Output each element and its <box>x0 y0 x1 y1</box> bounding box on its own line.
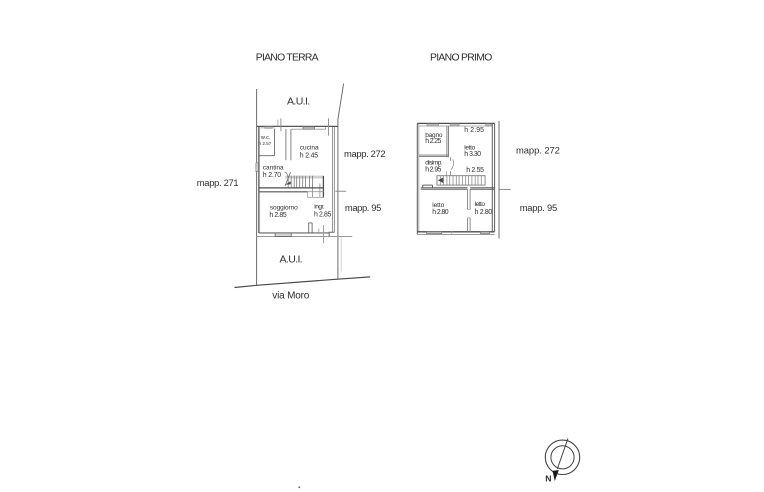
svg-text:mapp. 272: mapp. 272 <box>344 148 386 159</box>
svg-text:h 2.85: h 2.85 <box>314 211 331 218</box>
svg-text:h 2.45: h 2.45 <box>300 153 318 160</box>
svg-text:h 2.80: h 2.80 <box>432 209 449 216</box>
svg-text:ingr.: ingr. <box>314 203 325 210</box>
svg-text:h 2.85: h 2.85 <box>269 212 286 219</box>
svg-text:mapp. 95: mapp. 95 <box>345 202 381 213</box>
svg-text:cantina: cantina <box>263 165 284 172</box>
svg-text:h 2.57: h 2.57 <box>259 141 272 146</box>
svg-text:h 2.95: h 2.95 <box>464 127 484 134</box>
svg-text:PIANO PRIMO: PIANO PRIMO <box>430 52 492 63</box>
svg-text:via Moro: via Moro <box>272 290 309 301</box>
svg-text:mapp. 272: mapp. 272 <box>516 145 560 156</box>
svg-text:letto: letto <box>475 201 486 208</box>
svg-text:A.U.I.: A.U.I. <box>287 95 310 107</box>
svg-text:cucina: cucina <box>300 144 319 151</box>
svg-text:mapp. 95: mapp. 95 <box>520 202 558 213</box>
svg-text:PIANO TERRA: PIANO TERRA <box>256 52 319 63</box>
svg-text:h 2.95: h 2.95 <box>425 167 441 174</box>
svg-text:A.U.I.: A.U.I. <box>280 253 303 265</box>
svg-text:h 2.70: h 2.70 <box>263 172 281 179</box>
svg-text:h 2.25: h 2.25 <box>425 138 441 145</box>
svg-text:N: N <box>545 474 551 484</box>
svg-text:mapp. 271: mapp. 271 <box>197 177 239 188</box>
svg-text:h 2.80: h 2.80 <box>475 209 493 216</box>
svg-text:letto: letto <box>432 202 444 209</box>
svg-text:soggiorno: soggiorno <box>270 204 298 211</box>
svg-text:h 3.30: h 3.30 <box>464 151 481 158</box>
svg-text:disimp.: disimp. <box>425 159 443 166</box>
svg-text:h 2.55: h 2.55 <box>466 167 484 174</box>
